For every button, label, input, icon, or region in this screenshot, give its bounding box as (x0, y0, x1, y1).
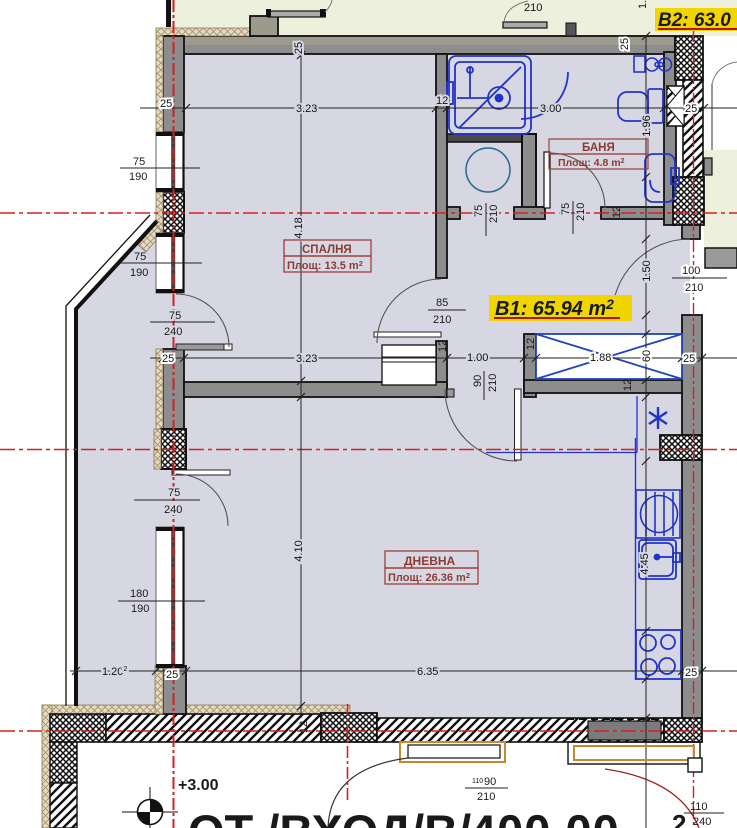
svg-text:3.00: 3.00 (540, 103, 561, 115)
svg-text:СПАЛНЯ: СПАЛНЯ (302, 244, 352, 256)
svg-text:12: 12 (437, 340, 449, 352)
svg-text:25: 25 (685, 667, 697, 679)
svg-text:240: 240 (693, 816, 711, 828)
svg-text:Площ: 26.36 m2: Площ: 26.36 m2 (388, 571, 470, 584)
svg-text:400.00: 400.00 (470, 805, 620, 828)
svg-text:90: 90 (484, 776, 496, 788)
svg-text:25: 25 (162, 353, 174, 365)
svg-text:1.5: 1.5 (637, 0, 649, 9)
svg-text:12: 12 (622, 379, 634, 391)
svg-text:75: 75 (134, 251, 146, 263)
svg-text:12: 12 (436, 95, 448, 107)
svg-text:БАНЯ: БАНЯ (582, 142, 615, 154)
svg-text:90: 90 (472, 375, 484, 387)
svg-text:2: 2 (672, 809, 686, 828)
svg-text:1.96: 1.96 (641, 115, 653, 136)
svg-text:75: 75 (473, 205, 485, 217)
svg-text:210: 210 (524, 2, 542, 14)
svg-text:75: 75 (168, 487, 180, 499)
svg-text:25: 25 (685, 103, 697, 115)
svg-text:B2: 63.0: B2: 63.0 (658, 10, 731, 31)
svg-text:3.23: 3.23 (296, 103, 317, 115)
svg-text:240: 240 (164, 504, 182, 516)
svg-text:+3.00: +3.00 (178, 777, 219, 794)
svg-text:75: 75 (133, 156, 145, 168)
svg-text:75: 75 (169, 310, 181, 322)
svg-text:25: 25 (619, 38, 631, 50)
svg-text:Площ: 13.5 m2: Площ: 13.5 m2 (287, 259, 363, 272)
svg-text:3.23: 3.23 (296, 353, 317, 365)
svg-text:4.18: 4.18 (293, 217, 305, 238)
svg-text:Площ: 4.8 m2: Площ: 4.8 m2 (558, 157, 625, 169)
svg-text:190: 190 (131, 603, 149, 615)
svg-text:12: 12 (525, 338, 537, 350)
svg-text:75: 75 (560, 203, 572, 215)
svg-text:180: 180 (130, 588, 148, 600)
svg-text:210: 210 (487, 374, 499, 392)
svg-text:60: 60 (641, 350, 653, 362)
svg-text:12: 12 (611, 206, 623, 218)
svg-text:190: 190 (129, 171, 147, 183)
svg-text:1.88: 1.88 (590, 352, 611, 364)
svg-text:12: 12 (298, 721, 310, 733)
svg-text:ОТ /ВХОД/В/: ОТ /ВХОД/В/ (188, 805, 471, 828)
svg-text:210: 210 (488, 205, 500, 223)
svg-text:100: 100 (682, 265, 700, 277)
svg-text:210: 210 (575, 203, 587, 221)
svg-text:B1: 65.94 m2: B1: 65.94 m2 (495, 296, 614, 320)
svg-text:25: 25 (160, 98, 172, 110)
svg-text:1.50: 1.50 (641, 260, 653, 281)
svg-text:25: 25 (683, 353, 695, 365)
svg-text:110: 110 (472, 778, 483, 785)
svg-text:110: 110 (690, 801, 708, 813)
svg-text:240: 240 (164, 326, 182, 338)
svg-text:4.45: 4.45 (639, 553, 651, 574)
svg-text:4.10: 4.10 (293, 540, 305, 561)
svg-text:1.00: 1.00 (467, 352, 488, 364)
svg-text:6.35: 6.35 (417, 666, 438, 678)
svg-text:85: 85 (436, 297, 448, 309)
svg-text:210: 210 (685, 282, 703, 294)
svg-text:25: 25 (166, 669, 178, 681)
svg-text:190: 190 (130, 267, 148, 279)
svg-text:25: 25 (293, 42, 305, 54)
svg-text:210: 210 (477, 791, 495, 803)
svg-text:210: 210 (433, 314, 451, 326)
svg-text:ДНЕВНА: ДНЕВНА (404, 554, 456, 568)
